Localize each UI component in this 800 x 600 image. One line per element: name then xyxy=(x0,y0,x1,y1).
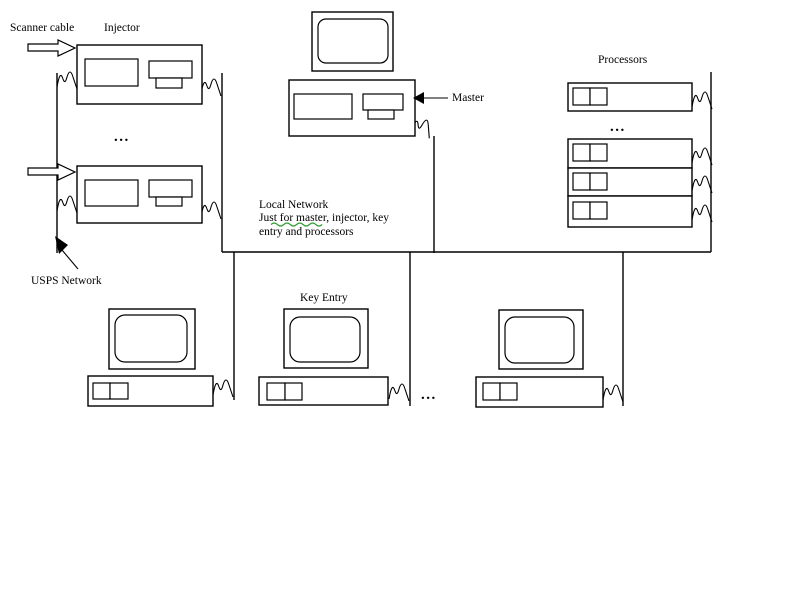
processor-unit-2 xyxy=(568,139,692,168)
master-label: Master xyxy=(452,92,484,104)
workstation-slot xyxy=(267,383,285,400)
processor-slot xyxy=(590,173,607,190)
master-drive xyxy=(363,94,403,110)
processor-slot xyxy=(590,144,607,161)
scanner-cable-arrow-icon xyxy=(28,164,75,180)
connector-squiggle-icon xyxy=(692,92,712,109)
master-computer xyxy=(289,12,415,136)
injector-drive xyxy=(149,180,192,197)
master-drive-tab xyxy=(368,110,394,119)
master-screen xyxy=(318,19,388,63)
processor-slot xyxy=(590,202,607,219)
injector-machine-1 xyxy=(77,45,202,104)
annotation-line-1: Local Network xyxy=(259,199,329,211)
workstation-slot xyxy=(110,383,128,399)
workstation-screen xyxy=(290,317,360,362)
processor-slot xyxy=(573,202,590,219)
usps-pointer-shaft xyxy=(62,250,78,269)
local-network-annotation: Local Network Just for master, injector,… xyxy=(259,199,389,238)
workstation-slot xyxy=(285,383,302,400)
injector-machine-2 xyxy=(77,166,202,223)
injector-panel xyxy=(85,59,138,86)
processor-unit-4 xyxy=(568,196,692,227)
processors-label: Processors xyxy=(598,54,648,66)
injector-drive xyxy=(149,61,192,78)
scanner-cable-arrow-icon xyxy=(28,40,75,56)
connector-squiggle-icon xyxy=(57,196,77,213)
injector-panel xyxy=(85,180,138,206)
processor-slot xyxy=(573,173,590,190)
connector-squiggle-icon xyxy=(57,72,77,89)
workstation-screen xyxy=(115,315,187,362)
connector-squiggle-icon xyxy=(603,385,623,402)
workstation-slot xyxy=(483,383,500,400)
keyentry-workstation-1 xyxy=(88,309,213,406)
connector-squiggle-icon xyxy=(389,384,409,401)
master-panel xyxy=(294,94,352,119)
injector-ellipsis: ... xyxy=(114,129,130,145)
injector-label: Injector xyxy=(104,22,140,34)
injector-drive-tab xyxy=(156,197,182,206)
processor-slot xyxy=(573,144,590,161)
processor-slot xyxy=(573,88,590,105)
usps-network-label: USPS Network xyxy=(31,275,102,287)
connector-squiggle-icon xyxy=(692,205,712,222)
connector-squiggle-icon xyxy=(692,176,712,193)
usps-pointer-arrow xyxy=(55,236,78,269)
workstation-screen xyxy=(505,317,574,363)
keyentry-workstation-3 xyxy=(476,310,603,407)
connector-squiggle-icon xyxy=(213,380,233,397)
master-pointer-arrow xyxy=(413,92,448,104)
workstation-slot xyxy=(500,383,517,400)
processor-slot xyxy=(590,88,607,105)
processors-ellipsis: ... xyxy=(610,119,626,135)
connector-squiggle-icon xyxy=(201,79,221,96)
processor-unit-3 xyxy=(568,168,692,196)
processor-stack xyxy=(568,83,692,227)
injector-drive-tab xyxy=(156,78,182,88)
annotation-line-2: Just for master, injector, key xyxy=(259,212,389,224)
connector-squiggle-icon xyxy=(201,202,221,219)
connector-squiggle-icon xyxy=(692,148,712,165)
keyentry-ellipsis: ... xyxy=(421,387,437,403)
annotation-line-3: entry and processors xyxy=(259,226,354,238)
processor-unit-1 xyxy=(568,83,692,111)
scanner-cable-label: Scanner cable xyxy=(10,22,74,34)
keyentry-workstation-2 xyxy=(259,309,388,405)
key-entry-label: Key Entry xyxy=(300,292,348,304)
network-diagram: Scanner cable Injector Master Processors… xyxy=(0,0,800,600)
workstation-slot xyxy=(93,383,110,399)
